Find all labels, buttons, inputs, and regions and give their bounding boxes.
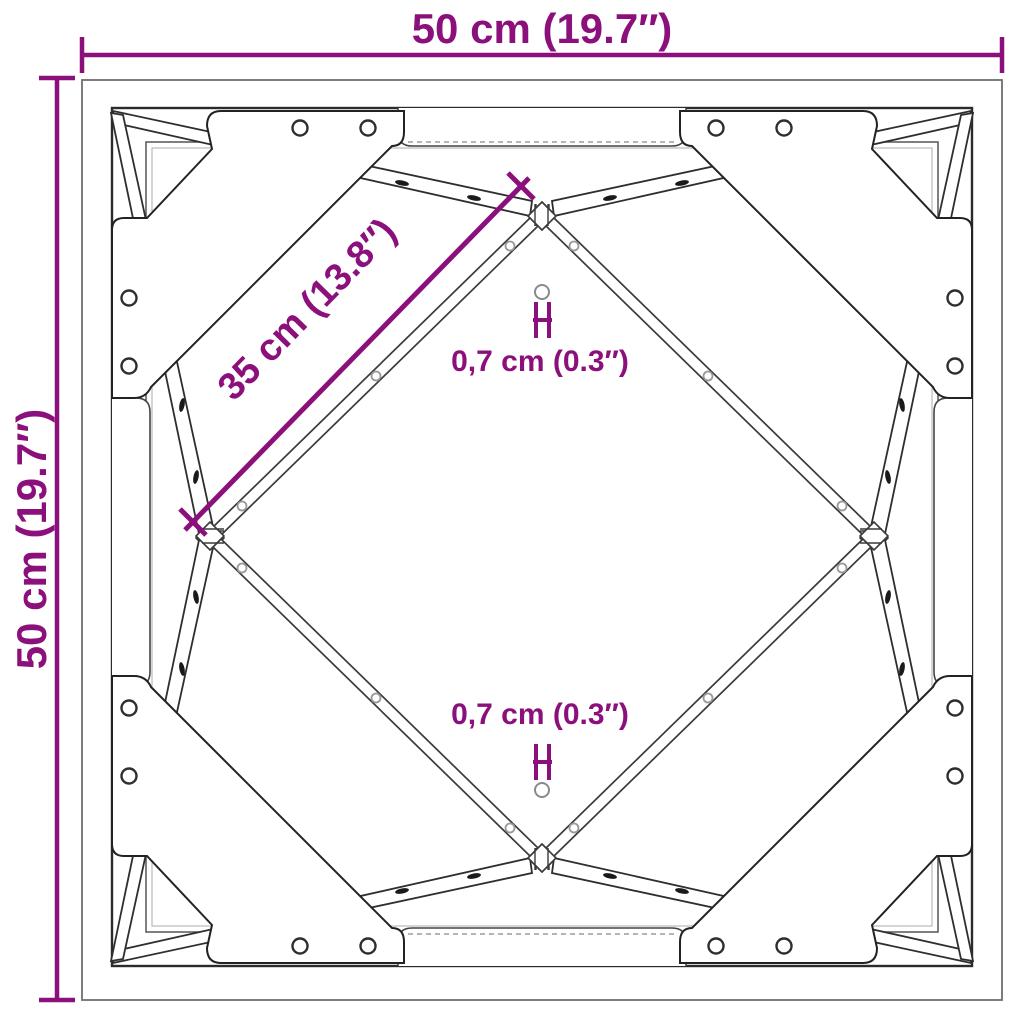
corner-assembly-bottom-right (528, 522, 973, 963)
diagram-page: 50 cm (19.7″) 50 cm (19.7″) 35 cm (13.8″… (0, 0, 1024, 1024)
corner-assembly-bottom-left (111, 522, 556, 963)
corner-assembly-top-left (111, 111, 556, 552)
rail-plate-top (398, 108, 686, 146)
center-hole-bottom (535, 783, 549, 797)
left-height-label: 50 cm (19.7″) (8, 409, 55, 670)
hole-bottom-label: 0,7 cm (0.3″) (451, 698, 629, 731)
rail-plate-left (112, 398, 150, 686)
hole-top-label: 0,7 cm (0.3″) (451, 345, 629, 378)
frame-structure (111, 108, 973, 966)
hole-diameter-marker-bottom (533, 744, 552, 780)
corner-assembly-top-right (528, 111, 973, 552)
frame-dimension-diagram: 50 cm (19.7″) 50 cm (19.7″) 35 cm (13.8″… (0, 0, 1024, 1024)
center-hole-top (535, 285, 549, 299)
rail-plate-right (934, 398, 972, 686)
top-width-label: 50 cm (19.7″) (412, 5, 673, 52)
hole-diameter-marker-top (533, 302, 552, 338)
